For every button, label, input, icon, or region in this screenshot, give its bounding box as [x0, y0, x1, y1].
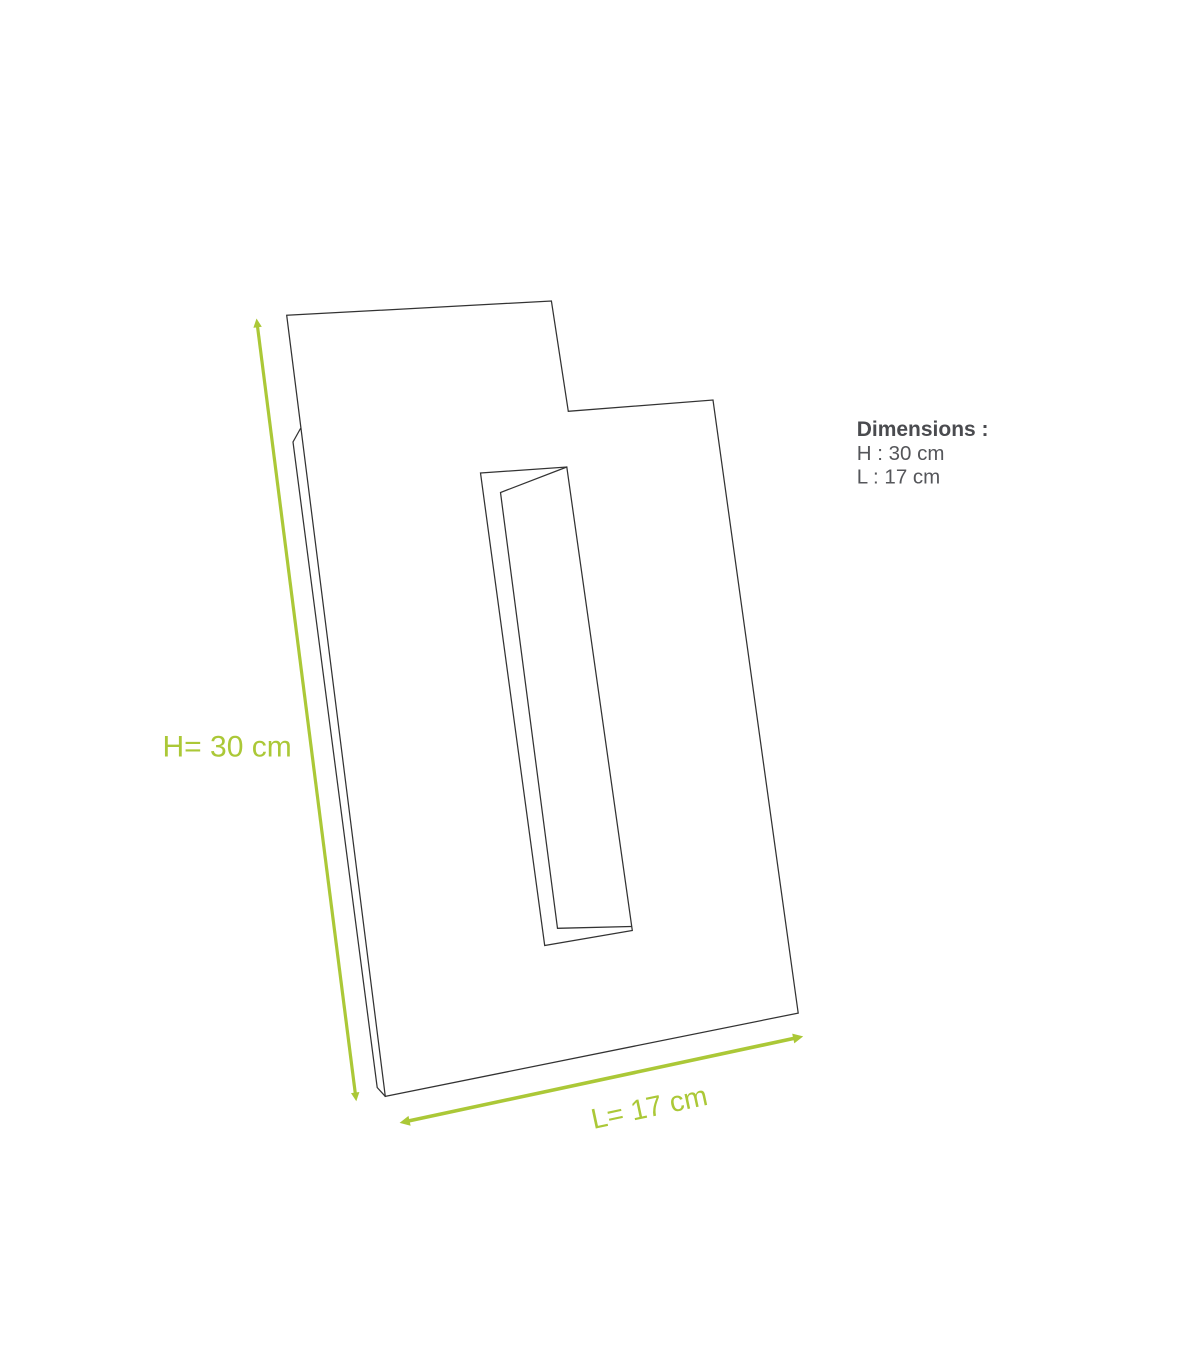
svg-text:H : 30 cm: H : 30 cm [857, 442, 945, 465]
svg-text:H= 30 cm: H= 30 cm [163, 731, 292, 764]
svg-text:L : 17 cm: L : 17 cm [857, 466, 941, 489]
svg-text:Dimensions :: Dimensions : [857, 418, 989, 441]
svg-text:L= 17 cm: L= 17 cm [588, 1080, 710, 1136]
